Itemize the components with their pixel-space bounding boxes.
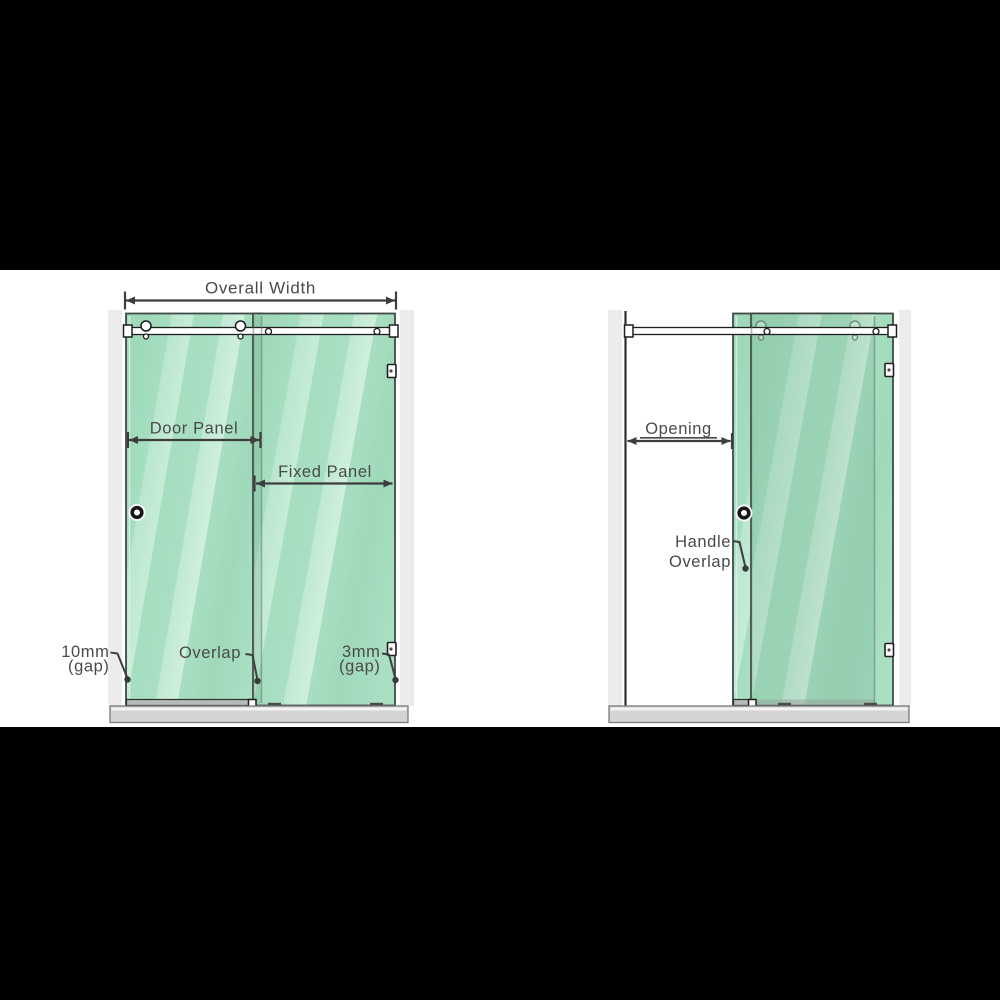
- letterbox-bottom: [0, 727, 1000, 1000]
- right-diagram-open-view: Opening Handle Overlap: [608, 310, 911, 723]
- left-diagram-closed-view: Overall Width Door Panel Fixed Panel: [61, 279, 414, 723]
- track-end-cap-right: [390, 325, 399, 337]
- left-gap-unit-label: (gap): [68, 658, 110, 676]
- roller-wheel-icon: [236, 321, 246, 331]
- wall-bracket-icon: [388, 365, 397, 378]
- shower-tray-highlight: [611, 708, 908, 711]
- right-gap-unit-label: (gap): [339, 658, 381, 676]
- letterbox-top: [0, 0, 1000, 270]
- door-panel-label: Door Panel: [150, 420, 239, 438]
- sliding-track-bar: [125, 328, 391, 335]
- track-clamp-icon: [374, 329, 380, 335]
- overall-width-label: Overall Width: [205, 279, 316, 298]
- wall-bracket-icon: [885, 364, 894, 377]
- door-handle-knob-icon: [132, 508, 142, 518]
- roller-screw-icon: [144, 334, 149, 339]
- sliding-track-bar: [626, 328, 890, 335]
- handle-overlap-label-line1: Handle: [675, 533, 731, 551]
- rail-seen-through-glass: [752, 700, 874, 706]
- opening-label: Opening: [645, 420, 712, 438]
- handle-overlap-label-line2: Overlap: [669, 553, 731, 571]
- overall-width-dimension: Overall Width: [125, 279, 396, 310]
- shower-door-diagram: Overall Width Door Panel Fixed Panel: [0, 270, 1000, 727]
- panel-foot: [864, 703, 877, 706]
- overlap-zone-tint: [254, 315, 261, 704]
- track-end-cap-left: [625, 325, 634, 337]
- right-gap-leader-dot: [392, 677, 398, 683]
- fixed-panel-label: Fixed Panel: [278, 463, 372, 481]
- left-gap-leader-dot: [124, 676, 130, 682]
- diagram-band: Overall Width Door Panel Fixed Panel: [0, 270, 1000, 727]
- right-wall-strip: [400, 310, 414, 706]
- right-wall-strip: [899, 310, 911, 706]
- roller-wheel-icon: [141, 321, 151, 331]
- door-bottom-rail: [127, 700, 253, 706]
- roller-screw-icon: [238, 334, 243, 339]
- ghost-roller-screw-icon: [853, 335, 858, 340]
- left-wall-strip: [108, 310, 122, 706]
- overlap-label: Overlap: [179, 644, 241, 662]
- ghost-roller-screw-icon: [759, 335, 764, 340]
- opening-dimension: Opening: [628, 420, 733, 449]
- wall-bracket-icon: [885, 644, 894, 657]
- track-end-cap-right: [888, 325, 897, 337]
- stacked-panels-tint: [752, 315, 874, 704]
- track-clamp-icon: [266, 329, 272, 335]
- track-clamp-icon: [764, 329, 770, 335]
- panel-foot: [778, 703, 791, 706]
- panel-foot: [268, 703, 281, 706]
- overlap-leader-dot: [254, 678, 260, 684]
- handle-overlap-leader-dot: [742, 565, 748, 571]
- shower-tray-highlight: [112, 708, 407, 711]
- panel-foot: [370, 703, 383, 706]
- left-wall-strip: [608, 310, 622, 706]
- screenshot-canvas: Overall Width Door Panel Fixed Panel: [0, 0, 1000, 1000]
- door-handle-knob-icon: [739, 508, 749, 518]
- track-clamp-icon: [873, 329, 879, 335]
- track-end-cap-left: [124, 325, 133, 337]
